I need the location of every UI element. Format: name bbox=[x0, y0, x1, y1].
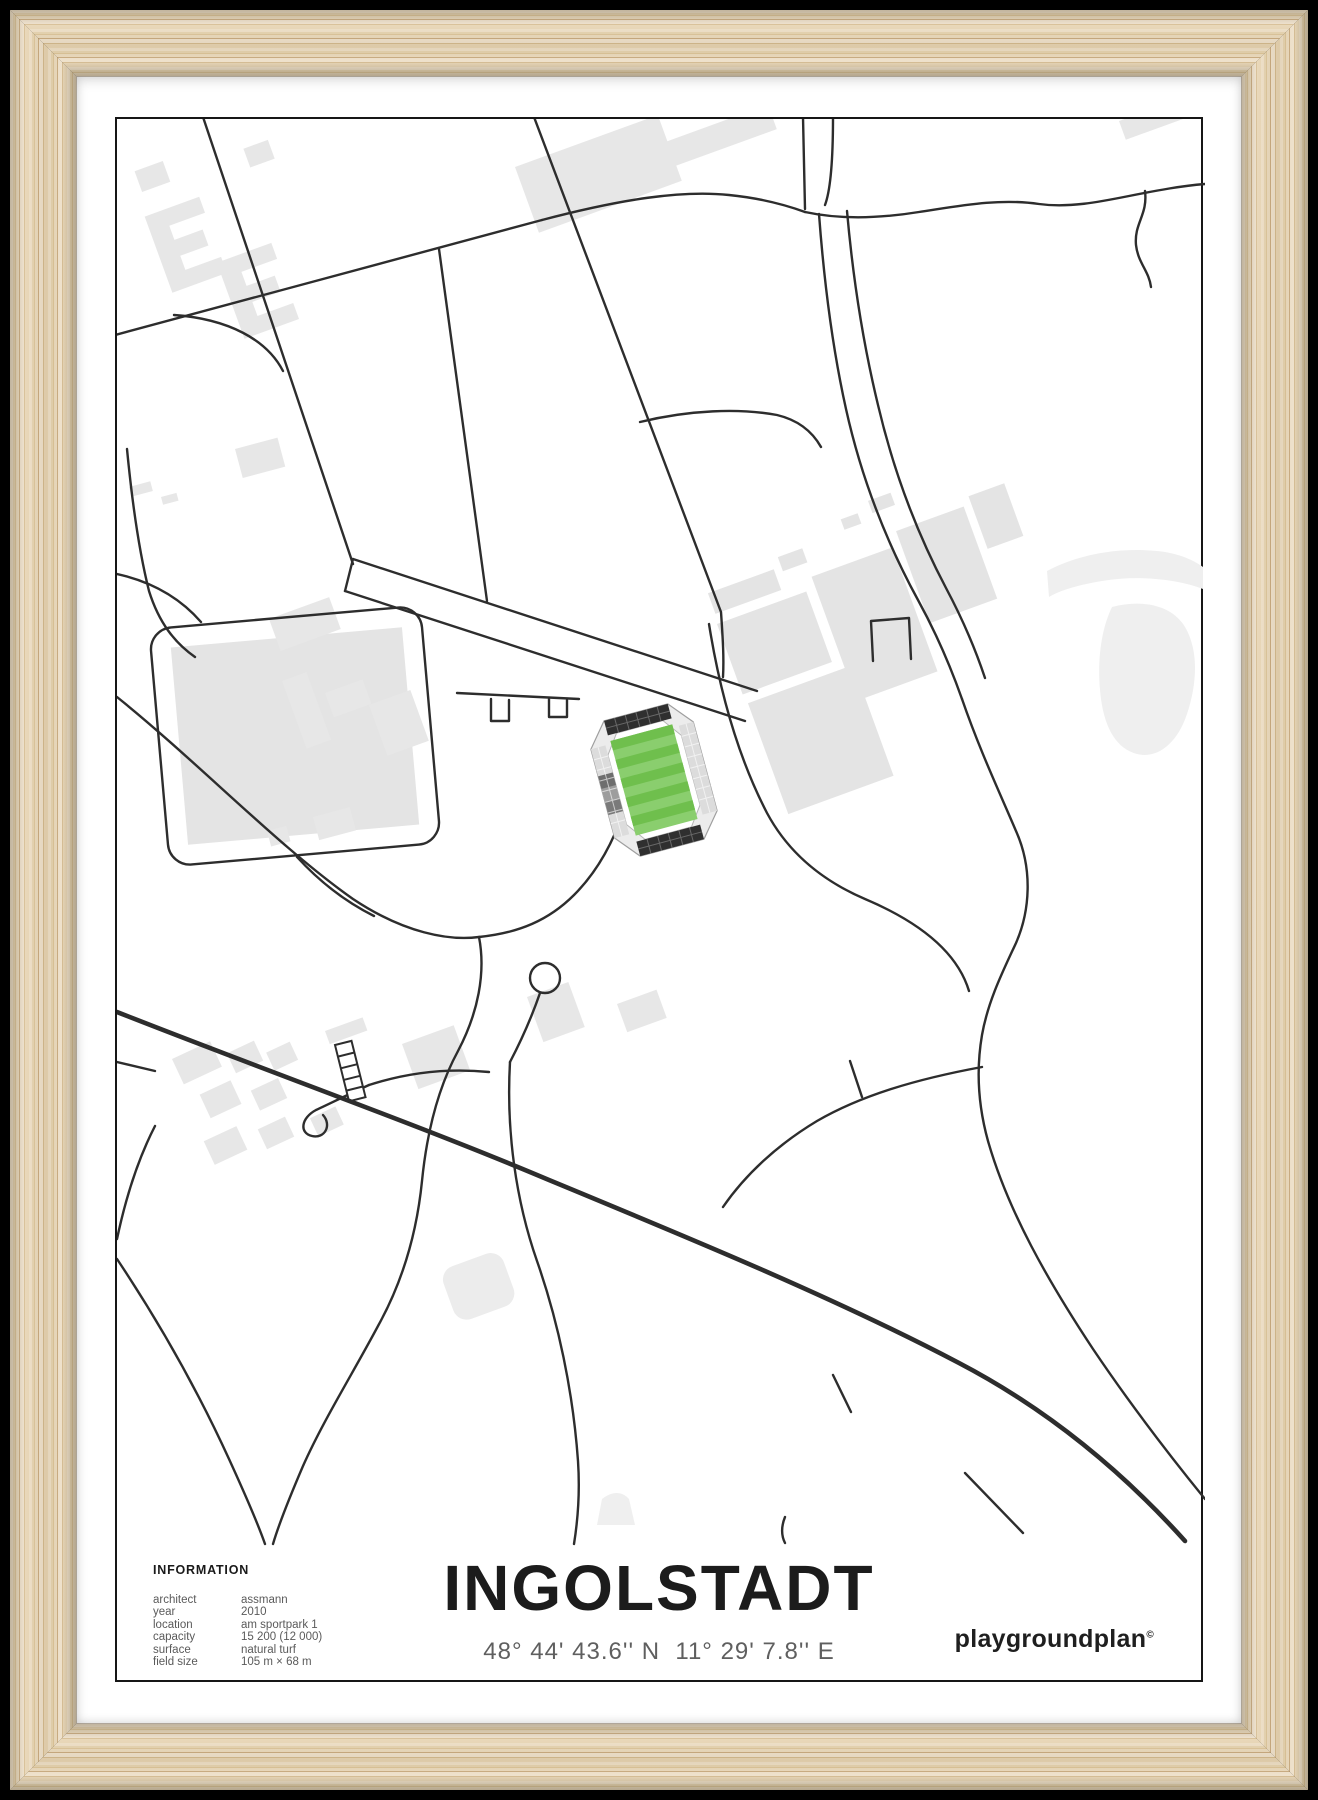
brand-mark: © bbox=[1146, 1630, 1154, 1641]
brand-logo: playgroundplan© bbox=[955, 1625, 1154, 1654]
stadium-map-graphic bbox=[117, 119, 1205, 1684]
lollipop-road-circle bbox=[530, 963, 560, 993]
framed-poster-photo: INFORMATION architectassmann year2010 lo… bbox=[0, 0, 1318, 1800]
stadium bbox=[585, 699, 724, 862]
info-row: locationam sportpark 1 bbox=[153, 1619, 322, 1631]
frame-top bbox=[10, 10, 1308, 76]
frame-right bbox=[1242, 10, 1308, 1790]
poster-title: INGOLSTADT bbox=[117, 1556, 1201, 1620]
parking-lots bbox=[695, 455, 1085, 815]
frame-bottom bbox=[10, 1724, 1308, 1790]
building-cluster-bottom-left bbox=[167, 1005, 344, 1181]
building-cluster-top-left bbox=[129, 125, 329, 357]
poster-art: INFORMATION architectassmann year2010 lo… bbox=[115, 117, 1203, 1682]
ladder-structure bbox=[335, 1041, 366, 1101]
frame-left bbox=[10, 10, 76, 1790]
